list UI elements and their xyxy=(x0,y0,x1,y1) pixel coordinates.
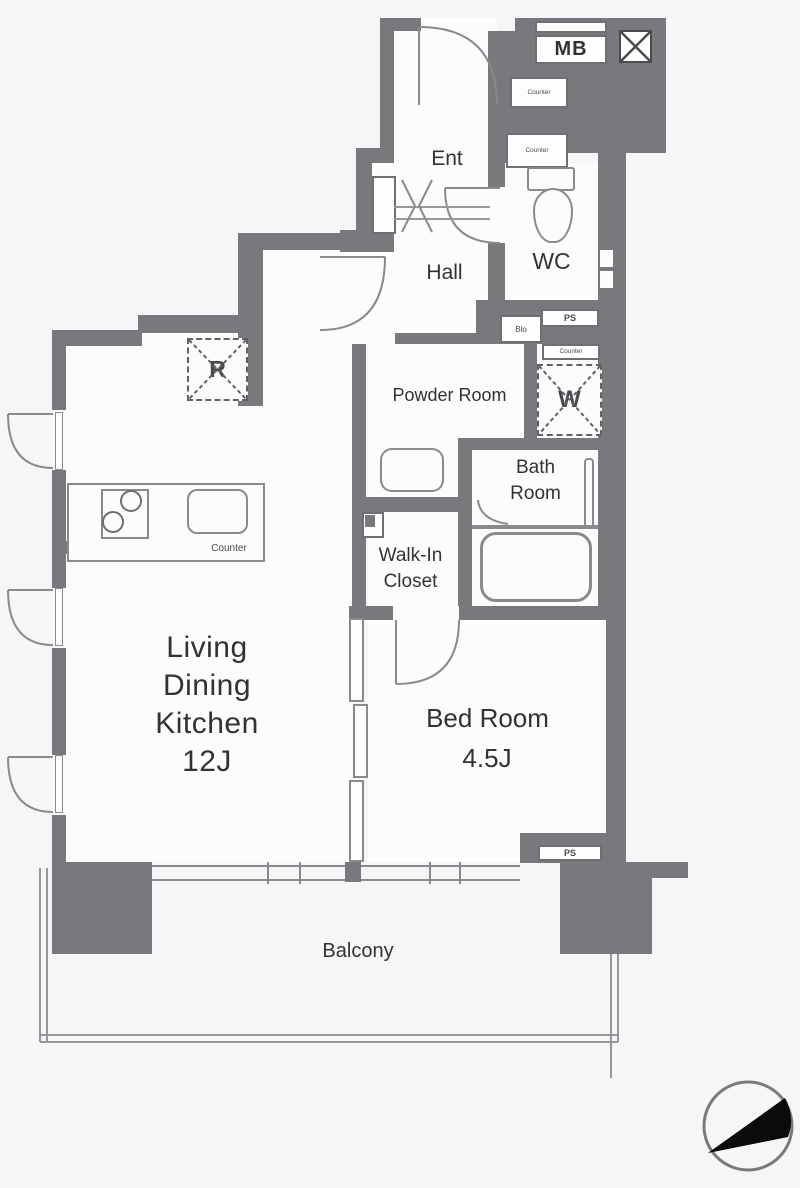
entrance-label: Ent xyxy=(412,146,482,172)
floor-plan: MB Counter Counter PS PS Blo Counter W R xyxy=(0,0,800,1188)
balcony-label: Balcony xyxy=(298,938,418,964)
bed-room-size-label: 4.5J xyxy=(432,742,542,774)
bath-room-label-2: Room xyxy=(488,481,583,507)
shaft-x-icon xyxy=(621,32,650,61)
window-arc xyxy=(8,757,53,812)
washer-diagonals xyxy=(539,366,600,434)
compass-icon xyxy=(704,1082,792,1170)
window-arc xyxy=(8,414,53,468)
powder-room-label: Powder Room xyxy=(372,383,527,407)
bedroom-door-arc xyxy=(396,620,459,684)
wc-label: WC xyxy=(505,247,598,275)
walk-in-closet-label-2: Closet xyxy=(358,569,463,595)
walk-in-closet-label-1: Walk-In xyxy=(358,543,463,569)
hall-label: Hall xyxy=(402,260,487,286)
balcony-rail xyxy=(40,868,618,1078)
ldk-label-4: 12J xyxy=(127,744,287,780)
ldk-label-1: Living xyxy=(127,630,287,666)
window-arc xyxy=(8,590,53,645)
refrigerator-diagonals xyxy=(189,340,246,399)
wc-door-arc xyxy=(445,188,500,243)
sliding-window xyxy=(152,866,520,880)
bath-room-label-1: Bath xyxy=(488,455,583,481)
ldk-label-2: Dining xyxy=(127,668,287,704)
corridor-door-arc xyxy=(320,257,385,330)
entrance-door-arc xyxy=(419,27,497,105)
bed-room-label: Bed Room xyxy=(395,702,580,734)
ldk-label-3: Kitchen xyxy=(127,706,287,742)
